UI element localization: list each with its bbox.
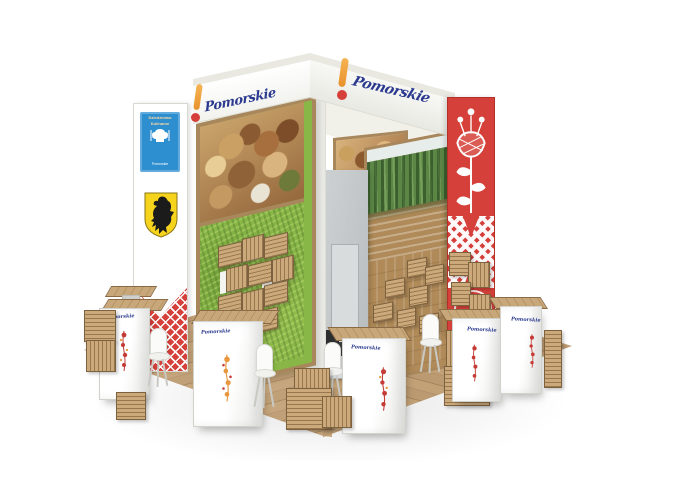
crate-stack (84, 310, 116, 372)
culinary-sign-line2: Kulinarne (140, 121, 180, 126)
wooden-crate-stool (86, 340, 116, 372)
folk-flower-motif (118, 327, 130, 375)
chair-leg (434, 345, 441, 372)
folk-flower-motif (220, 348, 234, 408)
counter-logo: Pomorskie (351, 344, 381, 352)
wooden-crate-stool (84, 310, 116, 342)
wooden-crate-bin (544, 330, 562, 388)
chair-leg (429, 346, 432, 373)
wooden-crate-stool (116, 392, 146, 420)
folk-tulip-motif (448, 104, 494, 216)
counter-front: Pomorskie (500, 306, 542, 394)
info-counter: Pomorskie (496, 297, 548, 393)
wooden-crate-stool (294, 368, 330, 390)
chair-seat (254, 369, 276, 378)
counter-logo: Pomorskie (467, 326, 497, 334)
white-chair (146, 328, 172, 400)
counter-logo: Pomorskie (201, 328, 231, 336)
exhibition-stand-render: Dziedzictwo Kulinarne Pomorskie (0, 0, 700, 480)
wooden-crate-shelf (409, 285, 428, 308)
wooden-crate-stool (322, 396, 352, 428)
totem-crate-shelf (451, 282, 471, 306)
chef-hat-icon (150, 127, 170, 145)
forest-lake-photo (367, 135, 447, 263)
chair-leg (262, 378, 265, 408)
folk-flower-motif (527, 331, 537, 371)
culinary-heritage-sign: Dziedzictwo Kulinarne Pomorskie (140, 112, 180, 172)
counter-front: Pomorskie (452, 318, 502, 402)
exclamation-dot-icon (337, 90, 347, 100)
folk-flower-motif (469, 341, 480, 385)
chair-leg (267, 377, 274, 407)
wooden-crate-shelf (425, 263, 444, 286)
chair-leg (253, 377, 260, 407)
griffin-coat-of-arms (144, 192, 178, 238)
folk-flower-motif (377, 361, 390, 417)
chair-leg (420, 345, 427, 372)
white-chair (252, 344, 278, 420)
culinary-sign-line1: Dziedzictwo (140, 115, 180, 120)
chair-leg (157, 360, 160, 387)
culinary-sign-caption: Pomorskie (140, 162, 180, 166)
totem-crate-shelf (468, 262, 490, 288)
chair-leg (148, 359, 155, 386)
white-chair (418, 314, 444, 386)
counter-logo: Pomorskie (511, 316, 541, 324)
exclamation-dot-icon (191, 113, 200, 122)
chair-leg (162, 359, 169, 386)
